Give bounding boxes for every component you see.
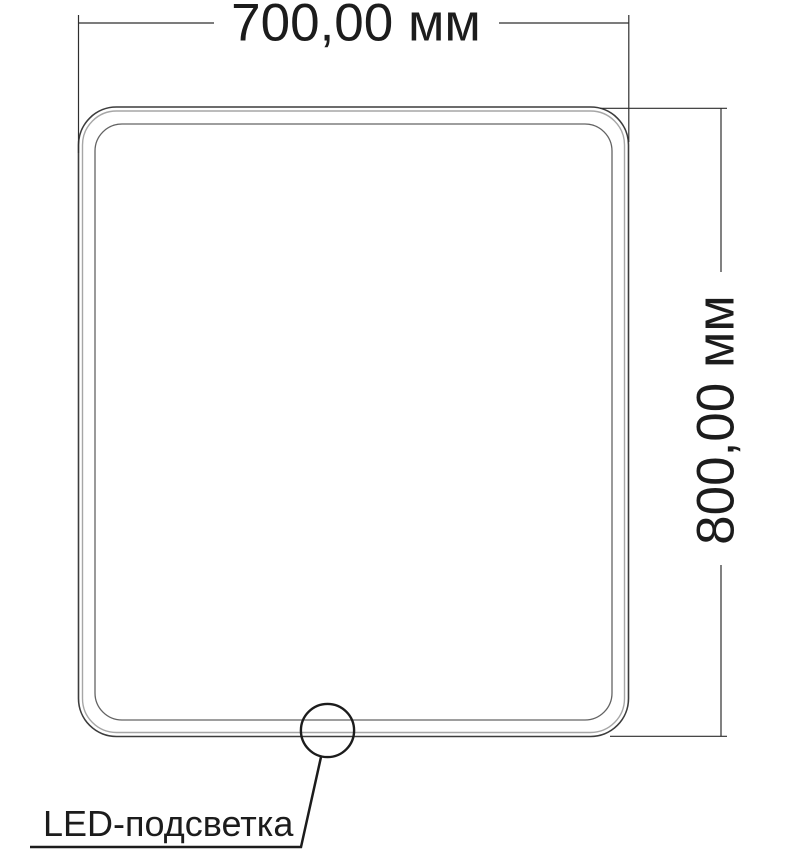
led-callout: LED-подсветка bbox=[30, 704, 354, 847]
mirror-inner-edge bbox=[95, 124, 612, 720]
mirror-outer-edge bbox=[79, 107, 629, 737]
mirror-outline bbox=[79, 107, 629, 737]
height-dimension-label: 800,00 мм bbox=[687, 295, 746, 545]
width-dimension-label: 700,00 мм bbox=[231, 0, 481, 53]
dimension-drawing-page: 700,00 мм 800,00 мм LED-подсветка bbox=[0, 0, 785, 859]
mirror-dimension-diagram: 700,00 мм 800,00 мм LED-подсветка bbox=[0, 0, 785, 859]
width-dimension: 700,00 мм bbox=[79, 0, 629, 153]
mirror-middle-edge bbox=[83, 111, 625, 733]
callout-circle bbox=[301, 704, 354, 757]
led-callout-label: LED-подсветка bbox=[43, 803, 294, 844]
height-dimension: 800,00 мм bbox=[600, 108, 746, 736]
